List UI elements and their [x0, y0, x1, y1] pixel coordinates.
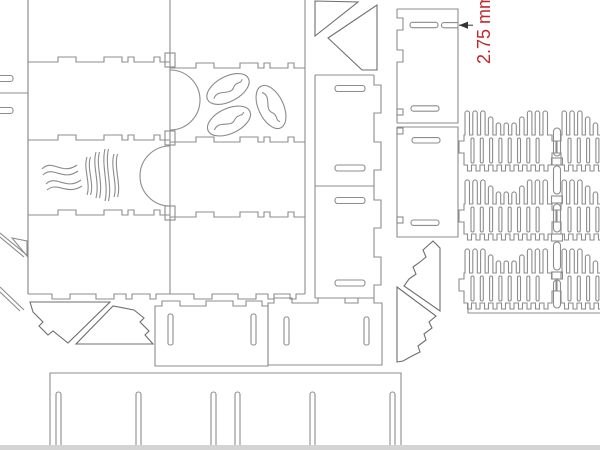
connector-bar [554, 242, 561, 270]
side-panel-grid [28, 0, 305, 299]
slotted-narrow-panels [315, 75, 381, 298]
panel-slot [412, 138, 440, 143]
finger-joint-line [28, 294, 170, 299]
mid-right-corner-triangles [397, 241, 440, 362]
finger-joint-line [170, 212, 305, 217]
base-panel-slot [235, 392, 240, 450]
finger-pull-cutout [140, 146, 170, 206]
dimension-label: 2.75 mm [474, 0, 494, 64]
coffee-bean-cutout [202, 67, 254, 111]
corner-triangle [76, 306, 153, 344]
panel-slot [335, 198, 365, 204]
finger-pull-cutout [170, 70, 200, 130]
panel-slot [335, 165, 365, 171]
finger-joint-line [170, 137, 305, 142]
page-bottom-edge [0, 445, 600, 450]
panel-slot [251, 314, 256, 345]
connector-knob [552, 196, 563, 203]
comb-piece [459, 249, 557, 309]
slotted-end-panels [397, 9, 458, 237]
coffee-bean-panel-decor [170, 67, 292, 142]
connector-bar [554, 166, 561, 194]
small-panel-outline [268, 298, 382, 365]
end-panel-outline [397, 9, 403, 123]
small-bottom-panels [155, 298, 382, 366]
laser-cut-sheet: 2.75 mm [0, 0, 600, 450]
base-panel [50, 373, 401, 450]
open-slot [441, 23, 458, 28]
comb-rack-pieces [459, 111, 600, 313]
comb-piece [459, 180, 557, 240]
top-corner-triangles [315, 1, 377, 70]
panel-slot [411, 220, 439, 225]
steam-wisp-cutout [43, 171, 78, 175]
steam-line-cutout [116, 154, 118, 197]
base-panel-slot [211, 392, 216, 450]
steam-line-cutout [95, 152, 97, 198]
panel-slot [410, 22, 438, 27]
narrow-panel-outline [374, 186, 381, 298]
edge-notch [397, 217, 403, 223]
panel-slot [364, 317, 369, 345]
bottom-left-corner-triangles [30, 302, 153, 344]
finger-joint-line [28, 210, 170, 215]
dimension-arrowhead-icon [459, 22, 468, 29]
panel-slot [335, 280, 365, 286]
corner-triangle [404, 241, 440, 311]
edge-notch [397, 109, 403, 115]
cut-plan-drawing: 2.75 mm [0, 0, 600, 450]
panel-slot [284, 317, 289, 345]
coffee-bean-cutout [203, 100, 255, 142]
corner-triangle [328, 5, 377, 70]
finger-joint-line [170, 63, 305, 68]
base-panel-slot [310, 392, 315, 450]
left-panel-slot [0, 108, 13, 114]
thickness-dimension: 2.75 mm [459, 0, 494, 64]
panel-slot [335, 86, 365, 92]
edge-notch [397, 128, 403, 134]
finger-joint-line [28, 57, 170, 62]
panel-slot [411, 106, 439, 111]
base-panel-outline [50, 373, 401, 450]
corner-triangle [315, 1, 358, 36]
steam-wisp-cutout [47, 186, 82, 190]
base-panel-slot [390, 392, 395, 450]
left-partial-panels [0, 0, 28, 311]
comb-piece [556, 180, 600, 240]
narrow-panel-outline [374, 75, 381, 186]
steam-panel-decor [42, 146, 170, 206]
comb-base-edge [468, 303, 600, 313]
coffee-bean-cutout [250, 81, 292, 133]
steam-line-cutout [89, 157, 91, 195]
base-panel-slot [136, 392, 141, 450]
steam-wisp-cutout [42, 165, 77, 169]
corner-triangle [397, 287, 436, 362]
left-partial-triangle [0, 292, 20, 311]
steam-wisp-cutout [46, 180, 81, 184]
comb-piece [459, 111, 557, 171]
connector-knob [552, 234, 563, 241]
panel-slot [168, 314, 173, 345]
steam-line-cutout [107, 149, 109, 201]
steam-line-cutout [86, 157, 88, 195]
finger-joint-line [28, 135, 170, 140]
left-partial-triangle [0, 287, 24, 310]
steam-line-cutout [98, 152, 100, 198]
steam-line-cutout [104, 149, 106, 201]
corner-triangle [30, 302, 110, 343]
steam-line-cutout [113, 154, 115, 197]
left-panel-slot [0, 76, 13, 82]
base-panel-slot [56, 392, 61, 450]
